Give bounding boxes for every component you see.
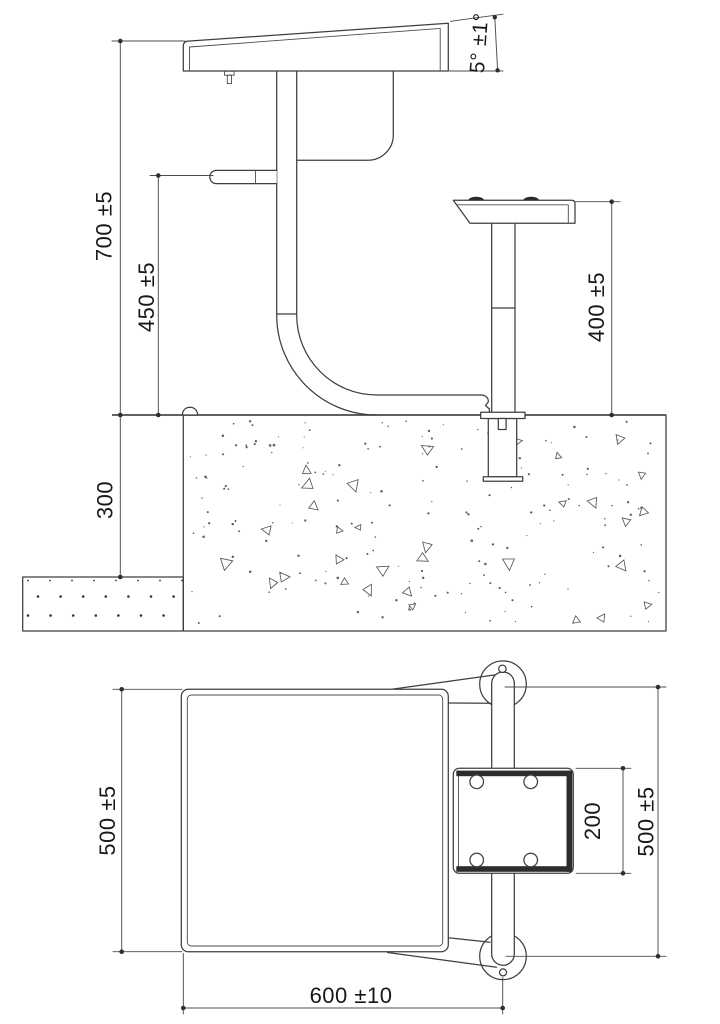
drawing-sheet: 700 ±5 450 ±5 300 400 ±5 5° ±1° — [0, 0, 720, 1024]
plan-view: 500 ±5 600 ±10 200 500 ±5 — [95, 661, 666, 1014]
book-basket — [297, 71, 394, 160]
anchor-stud — [498, 419, 506, 430]
desk-leg — [277, 71, 490, 415]
desk-plan — [181, 689, 448, 951]
desk-bolt — [225, 71, 235, 83]
seat-side — [453, 197, 575, 413]
concrete-block — [183, 415, 666, 631]
dim-hook-height: 450 ±5 — [134, 262, 159, 332]
bag-hook — [210, 170, 277, 183]
side-elevation-view: 700 ±5 450 ±5 300 400 ±5 5° ±1° — [23, 12, 666, 631]
concrete-hatch — [190, 420, 660, 624]
dim-desk-width: 600 ±10 — [310, 983, 393, 1008]
seat-edge-right — [567, 771, 573, 872]
dim-embed-depth: 300 — [93, 481, 118, 519]
technical-drawing: 700 ±5 450 ±5 300 400 ±5 5° ±1° — [0, 0, 720, 1024]
top-flange-hole — [499, 665, 506, 672]
side-dimensions: 700 ±5 450 ±5 300 400 ±5 5° ±1° — [92, 12, 621, 579]
ground-foundation — [23, 407, 666, 631]
paving-slab — [23, 577, 184, 631]
dim-overall-depth-right: 500 ±5 — [634, 786, 659, 856]
dim-seat-height: 400 ±5 — [584, 272, 609, 342]
anchor-assembly — [481, 412, 525, 481]
dimension-dots-side — [118, 15, 614, 579]
dim-overall-height: 700 ±5 — [92, 191, 117, 261]
seat-board-side — [453, 200, 575, 223]
desktop-plan-outer — [181, 689, 448, 951]
seat-edge-bottom — [456, 866, 570, 872]
ground-bump — [182, 407, 197, 415]
desk-side — [183, 23, 489, 415]
bottom-flange-hole — [500, 969, 507, 976]
dim-desk-depth-left: 500 ±5 — [95, 785, 120, 855]
dim-seat-depth: 200 — [580, 802, 605, 840]
anchor-bottom-plate — [483, 477, 522, 482]
seat-plan — [453, 768, 573, 873]
dimension-lines-side — [120, 17, 611, 577]
anchor-base-plate — [481, 412, 525, 418]
dim-top-angle: 5° ±1° — [466, 12, 493, 74]
slab-dots — [27, 580, 183, 617]
seat-post — [492, 223, 515, 412]
